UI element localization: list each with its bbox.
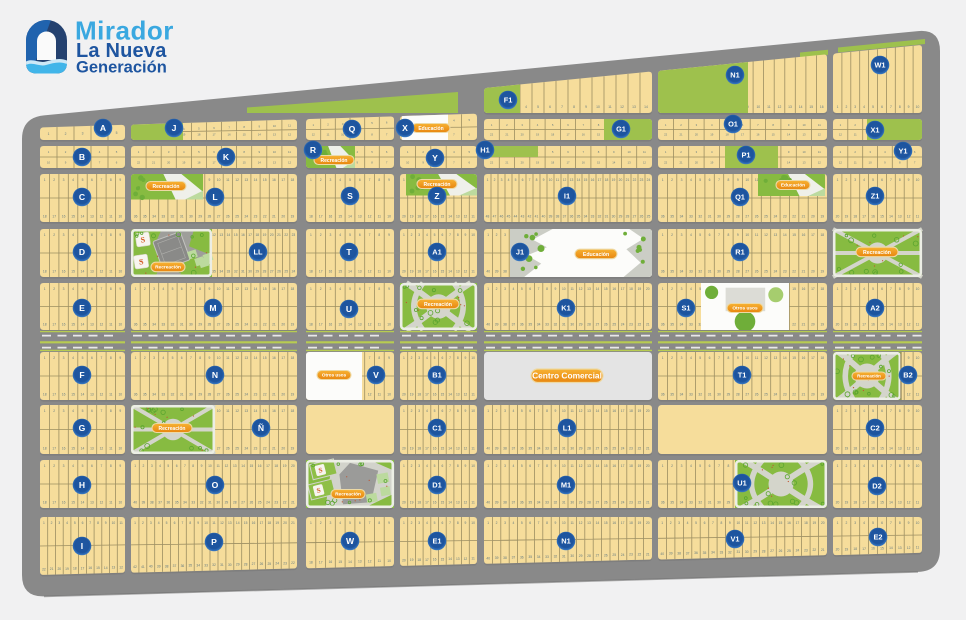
- svg-text:Z1: Z1: [871, 192, 880, 201]
- svg-text:G: G: [79, 423, 86, 433]
- svg-text:Ñ: Ñ: [258, 423, 264, 433]
- svg-text:D1: D1: [432, 481, 441, 490]
- svg-text:V: V: [373, 370, 379, 380]
- svg-text:P: P: [211, 537, 217, 547]
- svg-text:U: U: [346, 304, 352, 314]
- svg-text:R1: R1: [735, 248, 744, 257]
- svg-text:Recreación: Recreación: [857, 374, 881, 379]
- svg-text:N1: N1: [561, 537, 570, 546]
- svg-text:Recreación: Recreación: [335, 492, 361, 498]
- svg-text:R: R: [310, 145, 317, 155]
- svg-text:B: B: [79, 152, 85, 162]
- svg-text:W1: W1: [874, 61, 885, 70]
- svg-text:Q: Q: [349, 124, 356, 134]
- svg-text:Educación: Educación: [781, 183, 805, 189]
- svg-text:T: T: [346, 247, 352, 257]
- svg-text:Y1: Y1: [898, 147, 907, 156]
- svg-text:D: D: [79, 247, 85, 257]
- svg-text:A: A: [100, 123, 106, 133]
- svg-text:F1: F1: [504, 96, 513, 105]
- svg-text:E1: E1: [432, 537, 441, 546]
- svg-text:C2: C2: [870, 424, 879, 433]
- svg-text:X: X: [402, 123, 408, 133]
- svg-text:J1: J1: [516, 248, 524, 257]
- svg-text:Z: Z: [434, 191, 439, 201]
- svg-text:Recreación: Recreación: [424, 302, 452, 308]
- svg-text:K: K: [223, 152, 230, 162]
- svg-text:C: C: [79, 192, 85, 202]
- svg-text:L1: L1: [563, 424, 572, 433]
- svg-text:D2: D2: [872, 482, 881, 491]
- svg-text:Otros usos: Otros usos: [322, 373, 347, 378]
- svg-text:M: M: [209, 303, 216, 313]
- svg-text:Educación: Educación: [418, 126, 443, 132]
- svg-text:Otros usos: Otros usos: [732, 306, 758, 312]
- svg-text:J: J: [172, 123, 177, 133]
- svg-text:H1: H1: [480, 146, 489, 155]
- svg-text:Centro Comercial: Centro Comercial: [532, 371, 602, 381]
- svg-text:N1: N1: [730, 71, 739, 80]
- svg-text:B2: B2: [903, 371, 912, 380]
- svg-text:L: L: [212, 192, 217, 202]
- svg-text:Educación: Educación: [583, 252, 609, 258]
- svg-text:M1: M1: [561, 481, 571, 490]
- svg-text:Generación: Generación: [76, 59, 167, 77]
- svg-text:A2: A2: [870, 304, 879, 313]
- svg-text:LL: LL: [253, 248, 263, 257]
- svg-text:X1: X1: [870, 126, 879, 135]
- svg-text:Recreación: Recreación: [863, 250, 891, 256]
- svg-text:I: I: [81, 541, 83, 551]
- svg-text:E2: E2: [873, 533, 882, 542]
- svg-text:H: H: [79, 480, 85, 490]
- svg-text:O: O: [212, 480, 219, 490]
- svg-text:Q1: Q1: [735, 193, 745, 202]
- svg-text:W: W: [346, 536, 355, 546]
- svg-text:S: S: [347, 191, 353, 201]
- svg-text:Recreación: Recreación: [159, 426, 186, 432]
- svg-text:O1: O1: [728, 120, 738, 129]
- svg-text:S1: S1: [681, 304, 690, 313]
- svg-text:N: N: [212, 370, 218, 380]
- svg-text:Recreación: Recreación: [153, 184, 180, 190]
- svg-text:B1: B1: [432, 371, 441, 380]
- svg-text:Recreación: Recreación: [155, 265, 181, 271]
- svg-text:P1: P1: [741, 151, 750, 160]
- svg-text:K1: K1: [561, 304, 570, 313]
- svg-text:T1: T1: [738, 371, 747, 380]
- svg-text:E: E: [79, 303, 85, 313]
- svg-text:V1: V1: [730, 535, 739, 544]
- svg-text:Y: Y: [432, 153, 438, 163]
- svg-text:G1: G1: [616, 125, 626, 134]
- svg-text:F: F: [79, 370, 84, 380]
- svg-text:C1: C1: [432, 424, 441, 433]
- svg-text:I1: I1: [564, 192, 570, 201]
- svg-text:Recreación: Recreación: [321, 158, 348, 164]
- svg-text:U1: U1: [737, 479, 746, 488]
- svg-text:A1: A1: [432, 248, 441, 257]
